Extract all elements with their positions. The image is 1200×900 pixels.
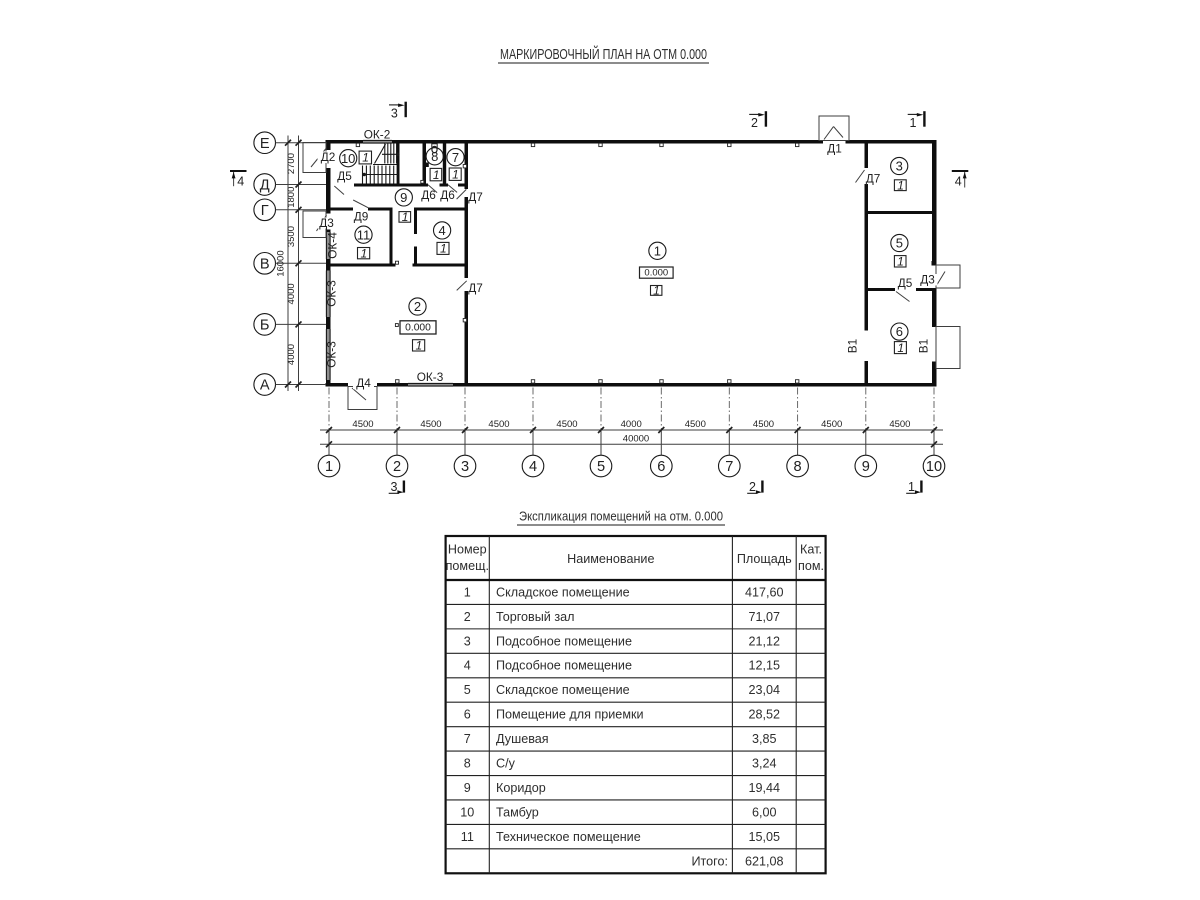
svg-text:Тамбур: Тамбур — [496, 805, 539, 819]
svg-text:3: 3 — [391, 107, 398, 121]
svg-text:3: 3 — [464, 634, 471, 648]
svg-text:28,52: 28,52 — [749, 708, 781, 722]
svg-text:Техническое помещение: Техническое помещение — [496, 830, 641, 844]
svg-text:Д7: Д7 — [866, 172, 881, 186]
svg-text:3: 3 — [896, 159, 903, 174]
svg-text:4500: 4500 — [420, 419, 441, 430]
svg-text:10: 10 — [341, 151, 355, 166]
svg-text:4500: 4500 — [753, 419, 774, 430]
svg-text:Д5: Д5 — [337, 169, 352, 183]
svg-text:Д3: Д3 — [920, 273, 935, 287]
svg-text:3,24: 3,24 — [752, 757, 777, 771]
svg-text:5: 5 — [464, 683, 471, 697]
svg-text:6: 6 — [896, 324, 903, 339]
svg-text:1: 1 — [402, 210, 409, 224]
svg-text:10: 10 — [460, 805, 474, 819]
svg-text:4500: 4500 — [488, 419, 509, 430]
svg-text:4: 4 — [438, 223, 445, 238]
svg-text:4: 4 — [237, 175, 244, 189]
svg-text:МАРКИРОВОЧНЫЙ ПЛАН НА ОТМ 0.00: МАРКИРОВОЧНЫЙ ПЛАН НА ОТМ 0.000 — [500, 45, 707, 63]
svg-text:Б: Б — [260, 318, 270, 334]
svg-text:4500: 4500 — [821, 419, 842, 430]
svg-text:0.000: 0.000 — [644, 268, 668, 279]
svg-text:10: 10 — [926, 459, 942, 475]
svg-text:1: 1 — [325, 459, 333, 475]
svg-text:Д2: Д2 — [321, 150, 336, 164]
svg-text:9: 9 — [400, 190, 407, 205]
svg-text:Кат.: Кат. — [800, 543, 822, 557]
svg-text:9: 9 — [464, 781, 471, 795]
svg-text:4: 4 — [529, 459, 537, 475]
svg-text:1: 1 — [908, 480, 915, 494]
svg-text:7: 7 — [725, 459, 733, 475]
svg-text:8: 8 — [794, 459, 802, 475]
svg-text:4500: 4500 — [556, 419, 577, 430]
svg-text:4000: 4000 — [286, 344, 297, 365]
svg-text:Коридор: Коридор — [496, 781, 546, 795]
svg-text:7: 7 — [452, 150, 459, 165]
svg-text:16000: 16000 — [276, 250, 287, 276]
svg-text:ОК-3: ОК-3 — [325, 341, 339, 368]
svg-text:12,15: 12,15 — [749, 659, 781, 673]
svg-text:2: 2 — [464, 610, 471, 624]
svg-text:Г: Г — [261, 203, 269, 219]
svg-text:4500: 4500 — [352, 419, 373, 430]
svg-text:71,07: 71,07 — [749, 610, 781, 624]
svg-text:Д6: Д6 — [421, 188, 436, 202]
svg-text:Д7: Д7 — [468, 190, 483, 204]
svg-text:4500: 4500 — [685, 419, 706, 430]
svg-text:3500: 3500 — [286, 226, 297, 247]
svg-text:Д5: Д5 — [898, 276, 913, 290]
svg-text:21,12: 21,12 — [749, 634, 781, 648]
svg-text:1800: 1800 — [286, 187, 297, 208]
svg-text:5: 5 — [896, 236, 903, 251]
svg-text:ОК-3: ОК-3 — [417, 370, 444, 384]
svg-text:11: 11 — [357, 227, 371, 242]
svg-text:В1: В1 — [846, 339, 860, 353]
svg-text:ОК-3: ОК-3 — [325, 280, 339, 307]
svg-text:1: 1 — [897, 178, 904, 192]
svg-text:Д7: Д7 — [468, 281, 483, 295]
svg-text:пом.: пом. — [798, 559, 824, 573]
svg-text:19,44: 19,44 — [749, 781, 781, 795]
svg-text:11: 11 — [461, 830, 474, 844]
svg-text:Д: Д — [260, 178, 270, 194]
svg-text:417,60: 417,60 — [745, 585, 784, 599]
svg-text:помещ.: помещ. — [446, 559, 489, 573]
svg-text:2700: 2700 — [286, 153, 297, 174]
svg-text:1: 1 — [464, 585, 471, 599]
svg-text:Наименование: Наименование — [567, 552, 654, 566]
svg-text:8: 8 — [431, 149, 438, 164]
svg-text:Складское помещение: Складское помещение — [496, 585, 630, 599]
svg-text:ОК-2: ОК-2 — [364, 128, 391, 142]
svg-text:15,05: 15,05 — [749, 830, 781, 844]
svg-text:4000: 4000 — [621, 419, 642, 430]
svg-text:2: 2 — [414, 299, 421, 314]
svg-text:4500: 4500 — [889, 419, 910, 430]
svg-text:Подсобное помещение: Подсобное помещение — [496, 659, 632, 673]
svg-text:Складское помещение: Складское помещение — [496, 683, 630, 697]
svg-text:4000: 4000 — [286, 283, 297, 304]
svg-text:7: 7 — [464, 732, 471, 746]
svg-text:6: 6 — [464, 708, 471, 722]
svg-text:4: 4 — [464, 659, 471, 673]
svg-text:Помещение для приемки: Помещение для приемки — [496, 708, 644, 722]
svg-text:Душевая: Душевая — [496, 732, 549, 746]
svg-text:1: 1 — [440, 242, 447, 256]
svg-text:23,04: 23,04 — [749, 683, 781, 697]
svg-text:1: 1 — [910, 116, 917, 130]
svg-text:6: 6 — [657, 459, 665, 475]
svg-text:3: 3 — [391, 480, 398, 494]
svg-text:Номер: Номер — [448, 543, 487, 557]
svg-text:Итого:: Итого: — [691, 854, 728, 868]
svg-text:Экспликация помещений на отм.: Экспликация помещений на отм. 0.000 — [519, 509, 723, 524]
svg-text:3,85: 3,85 — [752, 732, 777, 746]
svg-text:Д9: Д9 — [354, 210, 369, 224]
svg-text:2: 2 — [751, 116, 758, 130]
svg-text:1: 1 — [452, 167, 459, 181]
svg-text:1: 1 — [897, 341, 904, 355]
svg-text:ОК-4: ОК-4 — [326, 232, 340, 259]
svg-text:0.000: 0.000 — [405, 323, 431, 334]
svg-text:Торговый зал: Торговый зал — [496, 610, 574, 624]
svg-text:С/у: С/у — [496, 757, 516, 771]
svg-text:Д6: Д6 — [440, 188, 455, 202]
svg-text:4: 4 — [955, 175, 962, 189]
svg-text:Площадь: Площадь — [737, 552, 792, 566]
svg-text:1: 1 — [897, 255, 904, 269]
svg-text:Д1: Д1 — [827, 142, 842, 156]
svg-text:9: 9 — [862, 459, 870, 475]
svg-text:2: 2 — [749, 480, 756, 494]
svg-text:40000: 40000 — [623, 434, 649, 445]
svg-text:6,00: 6,00 — [752, 805, 777, 819]
svg-text:5: 5 — [597, 459, 605, 475]
svg-text:Д3: Д3 — [319, 216, 334, 230]
svg-text:2: 2 — [393, 459, 401, 475]
svg-text:1: 1 — [433, 168, 440, 182]
svg-text:1: 1 — [653, 284, 660, 298]
svg-text:В1: В1 — [917, 339, 931, 353]
svg-text:3: 3 — [461, 459, 469, 475]
svg-text:Подсобное помещение: Подсобное помещение — [496, 634, 632, 648]
svg-text:Е: Е — [260, 136, 270, 152]
svg-text:1: 1 — [361, 246, 368, 260]
svg-text:621,08: 621,08 — [745, 854, 784, 868]
svg-text:А: А — [260, 378, 270, 394]
svg-text:8: 8 — [464, 757, 471, 771]
svg-text:1: 1 — [362, 151, 369, 165]
svg-text:В: В — [260, 257, 270, 273]
svg-text:1: 1 — [416, 339, 423, 353]
svg-text:1: 1 — [654, 243, 661, 258]
svg-text:Д4: Д4 — [356, 376, 371, 390]
